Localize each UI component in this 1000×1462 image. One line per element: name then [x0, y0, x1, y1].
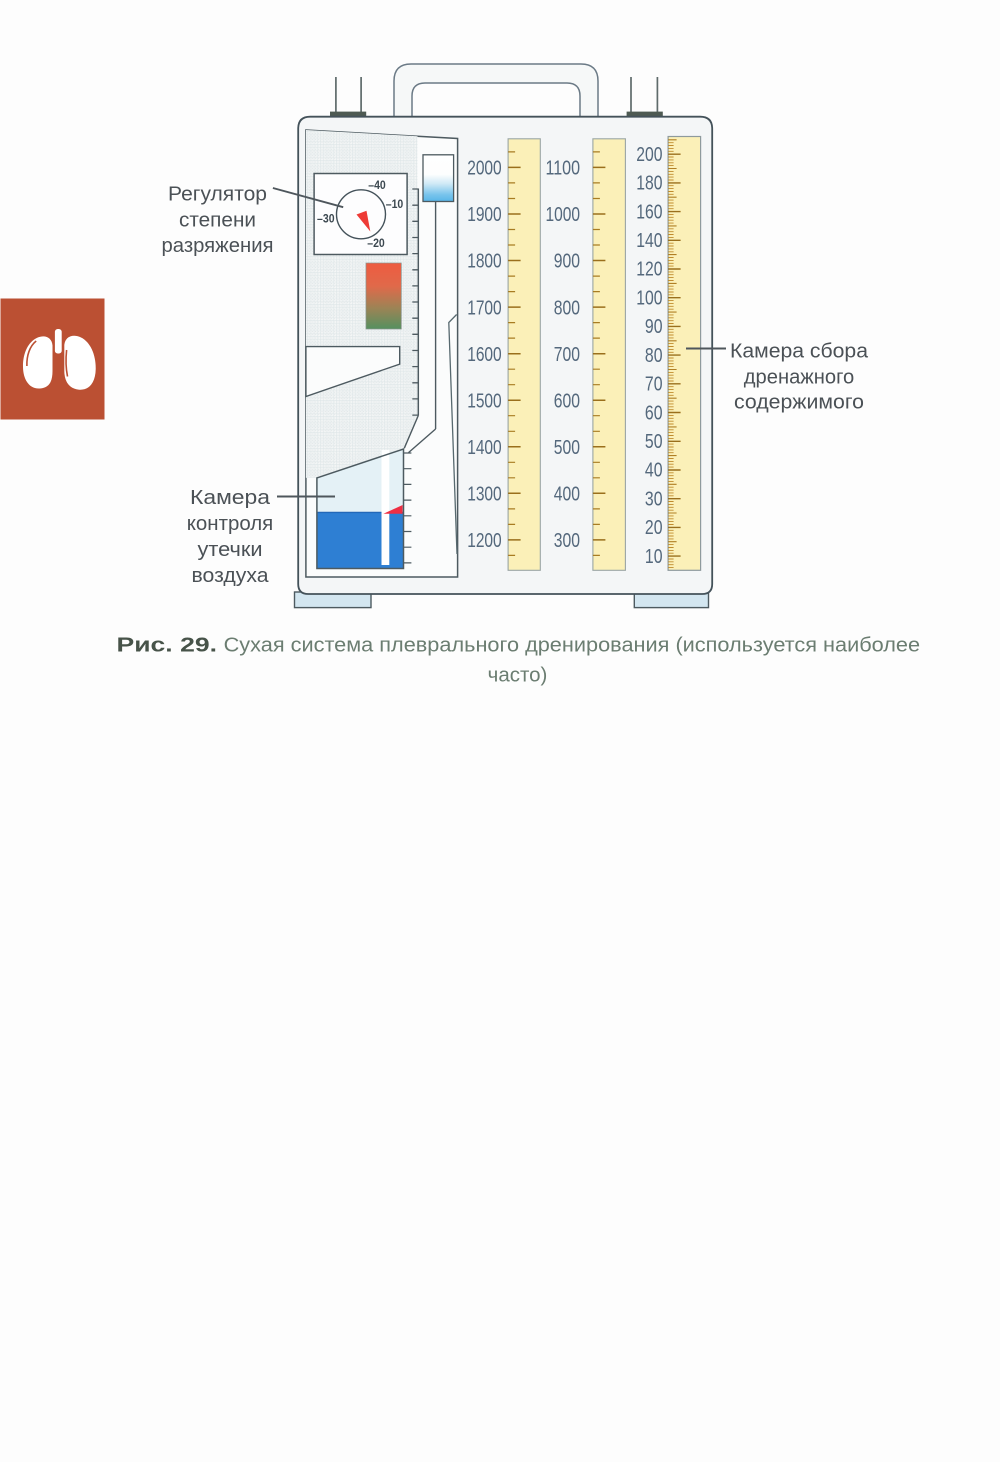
- svg-text:200: 200: [636, 144, 662, 166]
- svg-text:80: 80: [645, 345, 663, 367]
- svg-text:–30: –30: [317, 214, 335, 226]
- svg-text:2000: 2000: [467, 158, 502, 180]
- svg-text:Рис. 29.: Рис. 29.: [117, 634, 218, 657]
- svg-text:500: 500: [554, 437, 580, 459]
- svg-text:300: 300: [554, 530, 580, 552]
- svg-text:30: 30: [645, 488, 663, 510]
- svg-text:400: 400: [554, 484, 580, 506]
- svg-text:1900: 1900: [467, 204, 502, 226]
- svg-text:–20: –20: [367, 238, 385, 250]
- svg-text:–40: –40: [368, 180, 386, 192]
- svg-text:Камера сбора: Камера сбора: [730, 340, 869, 363]
- svg-text:90: 90: [645, 316, 663, 338]
- svg-text:часто): часто): [488, 664, 548, 687]
- svg-text:1400: 1400: [467, 437, 502, 459]
- svg-text:800: 800: [554, 297, 580, 319]
- svg-text:70: 70: [645, 374, 663, 396]
- svg-text:700: 700: [554, 344, 580, 366]
- svg-text:Сухая система плеврального дре: Сухая система плеврального дренирования …: [224, 634, 921, 657]
- svg-text:1000: 1000: [546, 204, 581, 226]
- svg-text:120: 120: [636, 259, 662, 281]
- svg-text:10: 10: [645, 546, 663, 568]
- svg-text:содержимого: содержимого: [734, 391, 864, 414]
- svg-text:600: 600: [554, 390, 580, 412]
- svg-text:разряжения: разряжения: [162, 234, 274, 257]
- svg-text:1700: 1700: [467, 297, 502, 319]
- svg-text:Камера: Камера: [190, 486, 271, 509]
- svg-text:контроля: контроля: [187, 512, 274, 535]
- svg-text:1800: 1800: [467, 251, 502, 273]
- svg-text:воздуха: воздуха: [192, 564, 270, 587]
- svg-text:160: 160: [636, 201, 662, 223]
- svg-text:900: 900: [554, 251, 580, 273]
- svg-text:1500: 1500: [467, 390, 502, 412]
- svg-text:20: 20: [645, 517, 663, 539]
- svg-text:60: 60: [645, 402, 663, 424]
- svg-text:1600: 1600: [467, 344, 502, 366]
- svg-text:1100: 1100: [546, 158, 581, 180]
- svg-text:1300: 1300: [467, 484, 502, 506]
- svg-text:50: 50: [645, 431, 663, 453]
- svg-text:степени: степени: [179, 209, 256, 232]
- svg-text:–10: –10: [386, 199, 404, 211]
- svg-text:1200: 1200: [467, 530, 502, 552]
- svg-text:Регулятор: Регулятор: [168, 183, 267, 206]
- svg-text:40: 40: [645, 460, 663, 482]
- svg-text:140: 140: [636, 230, 662, 252]
- svg-text:100: 100: [636, 287, 662, 309]
- svg-text:дренажного: дренажного: [744, 366, 855, 389]
- svg-text:утечки: утечки: [198, 538, 263, 561]
- svg-text:180: 180: [636, 173, 662, 195]
